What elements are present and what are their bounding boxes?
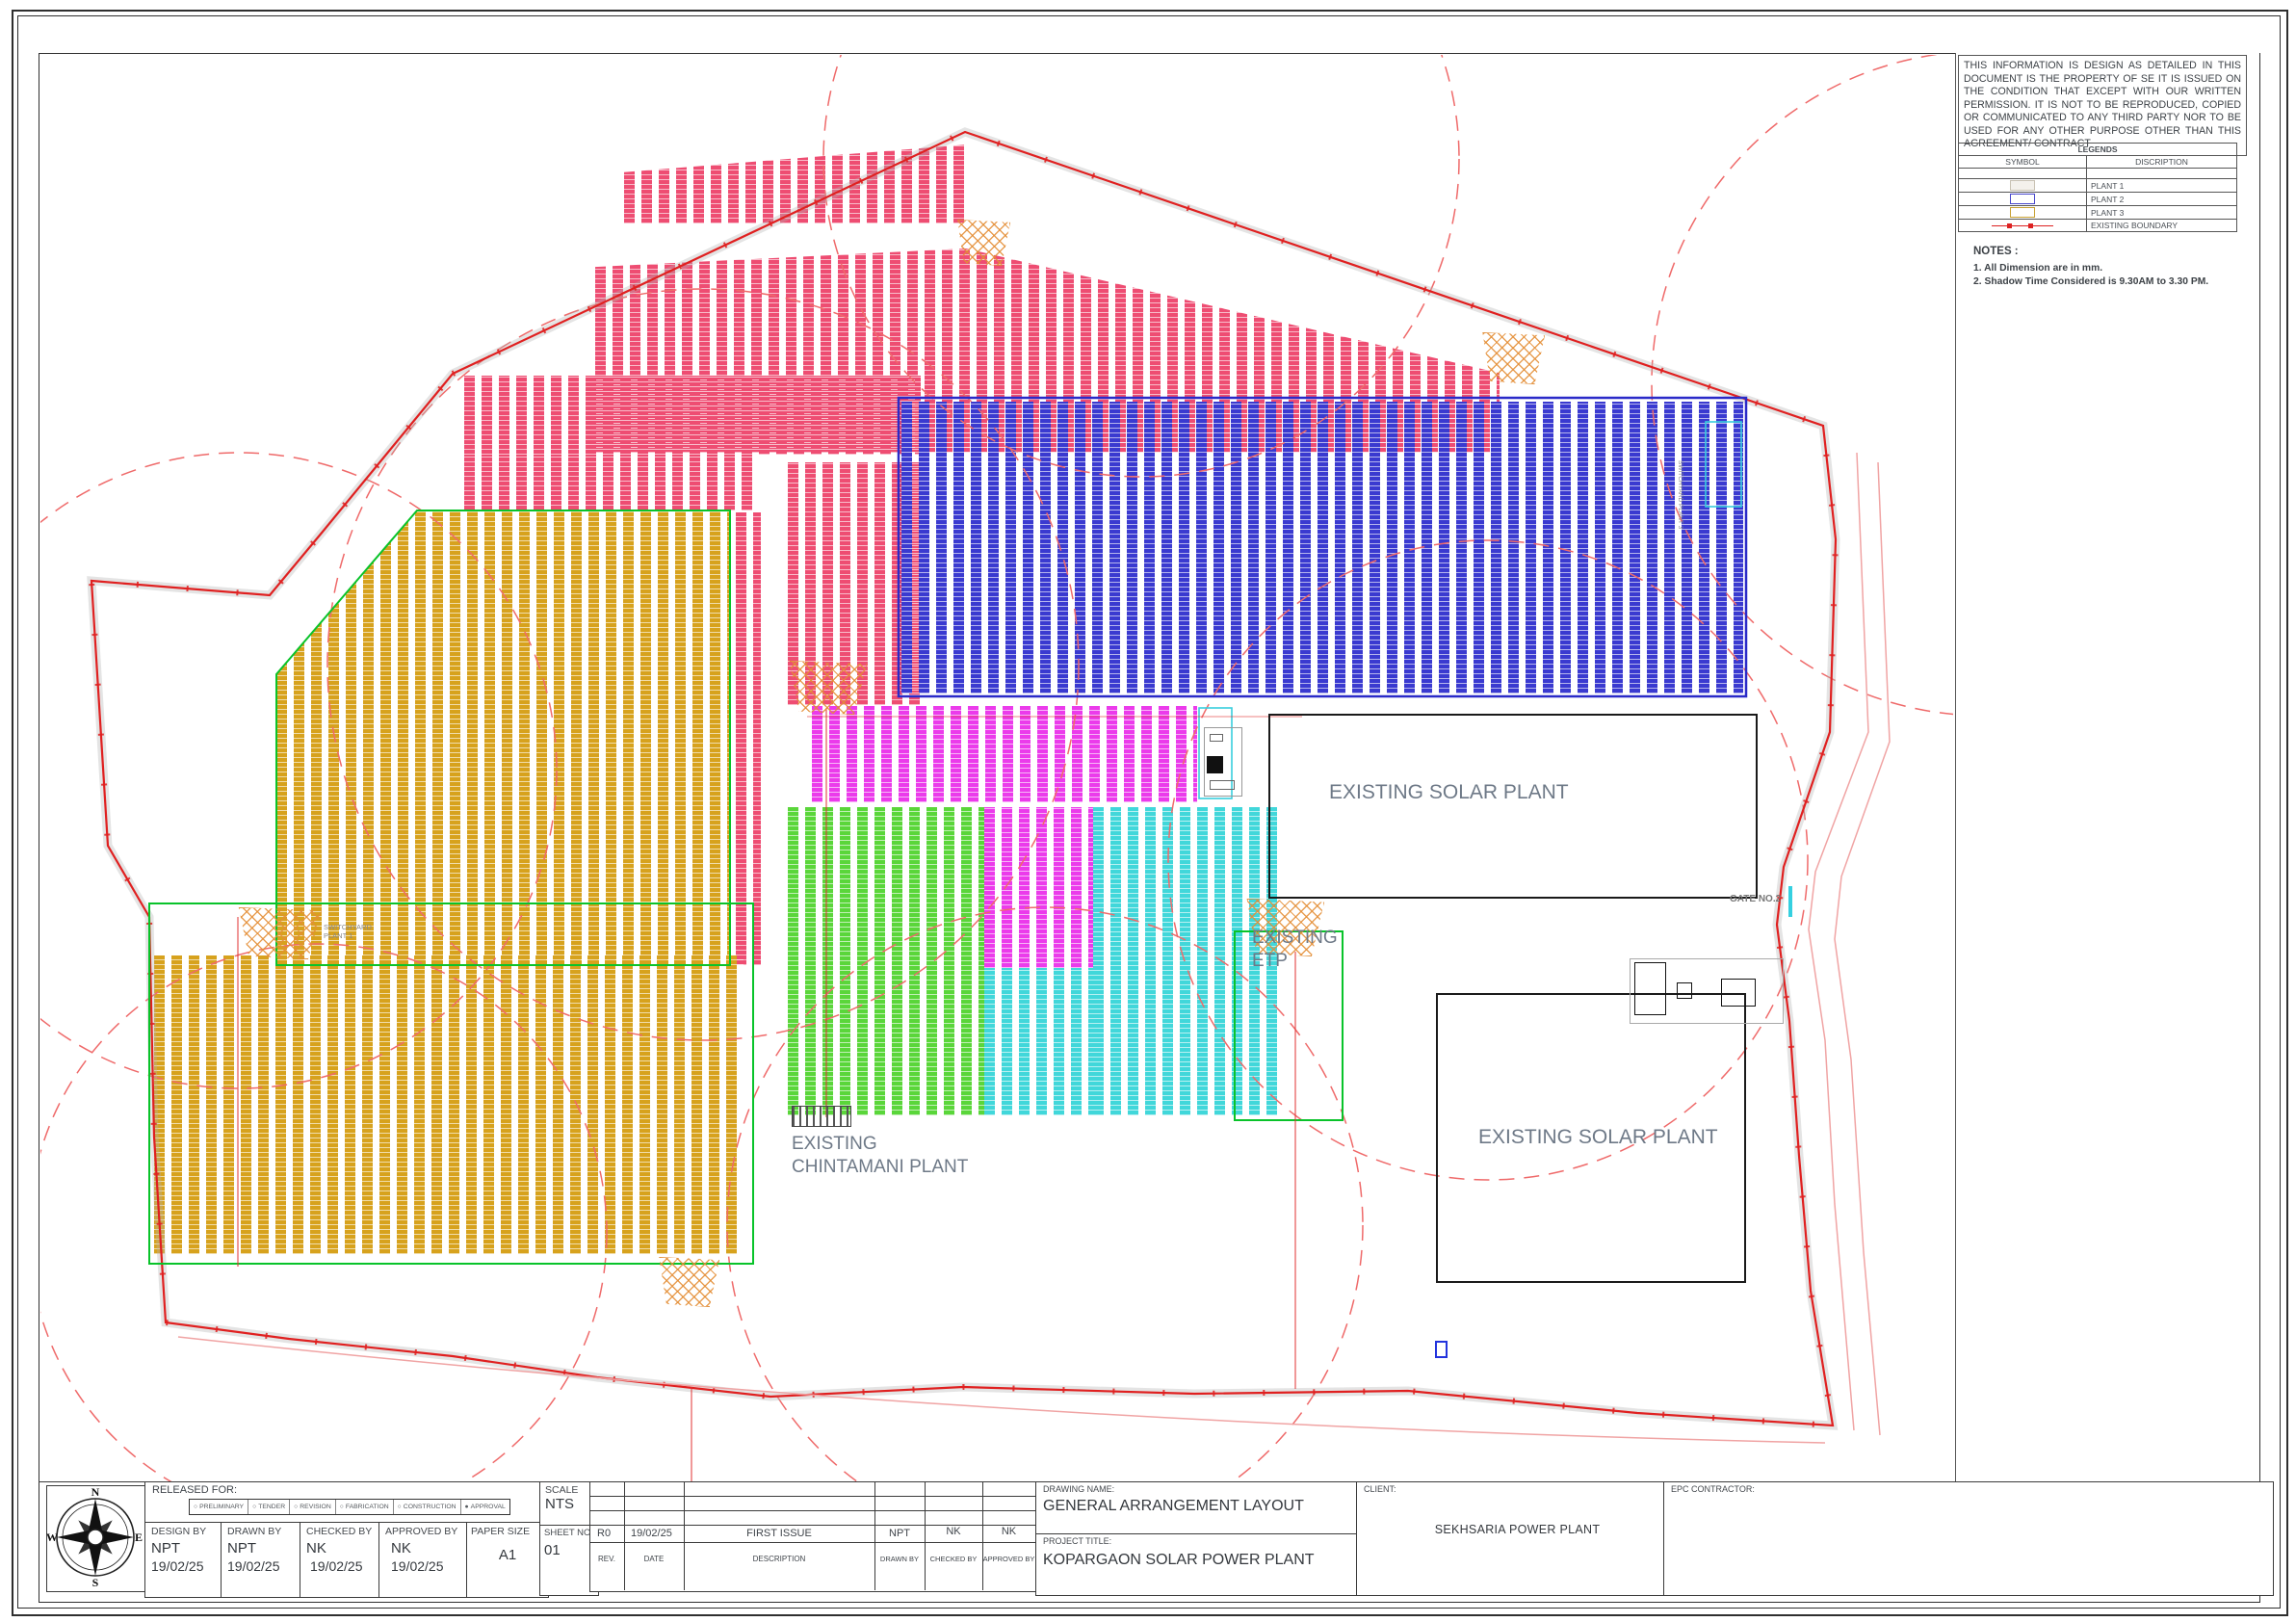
- radio-icon: ○: [398, 1504, 402, 1510]
- panel-field-plant1-left-band: [464, 376, 921, 455]
- sheet-no-label: SHEET NO.: [544, 1528, 594, 1538]
- rev-approved-header: APPROVED BY: [982, 1555, 1035, 1563]
- rev-checked-header: CHECKED BY: [925, 1555, 982, 1563]
- equipment-box-1: [1210, 734, 1223, 742]
- project-title-label: PROJECT TITLE:: [1043, 1536, 1364, 1546]
- client-label: CLIENT:: [1364, 1484, 1671, 1494]
- paper-size-value: A1: [471, 1547, 544, 1563]
- building-2: [1677, 982, 1692, 999]
- rev-date-header: DATE: [624, 1555, 684, 1563]
- epc-contractor-label: EPC CONTRACTOR:: [1671, 1484, 2266, 1494]
- radio-icon: ○: [252, 1504, 256, 1510]
- option-construction: ○CONSTRUCTION: [394, 1500, 461, 1514]
- label-chintamani: EXISTING CHINTAMANI PLANT: [792, 1133, 968, 1179]
- rev-drawn-header: DRAWN BY: [874, 1555, 925, 1563]
- checked-by-name: NK: [306, 1540, 385, 1557]
- titleblock-top-rule: [39, 1481, 2258, 1482]
- disclaimer-text: THIS INFORMATION IS DESIGN AS DETAILED I…: [1958, 55, 2247, 156]
- panel-field-plant1-left-band2: [464, 455, 759, 510]
- rev-value: R0: [597, 1528, 611, 1539]
- approved-by-label: APPROVED BY: [385, 1526, 473, 1537]
- label-switchyard-plant1-line2: PLANT 1: [324, 931, 372, 940]
- option-tender: ○TENDER: [248, 1500, 290, 1514]
- building-3: [1721, 979, 1756, 1007]
- panel-field-plant1-thin-strip: [736, 512, 761, 965]
- label-chintamani-line2: CHINTAMANI PLANT: [792, 1156, 968, 1179]
- drawing-sheet: { "disclaimer": "THIS INFORMATION IS DES…: [0, 0, 2296, 1622]
- compass-w: W: [46, 1530, 58, 1544]
- plant1-swatch: [2010, 180, 2035, 191]
- rev-header: REV.: [589, 1555, 624, 1563]
- legend-label-plant3: PLANT 3: [2087, 206, 2236, 219]
- legend-label-plant2: PLANT 2: [2087, 193, 2236, 205]
- approved-by-name: NK: [391, 1540, 473, 1557]
- option-approval: ●APPROVAL: [461, 1500, 509, 1514]
- legends-spacer-row: [1959, 168, 2236, 178]
- epc-contractor-cell: EPC CONTRACTOR:: [1663, 1481, 2274, 1596]
- radio-icon: ○: [294, 1504, 298, 1510]
- radio-icon: ○: [340, 1504, 344, 1510]
- legend-label-boundary: EXISTING BOUNDARY: [2087, 220, 2236, 231]
- rev-desc-header: DESCRIPTION: [684, 1555, 874, 1563]
- transformer-block: [1207, 756, 1223, 773]
- notes-panel: THIS INFORMATION IS DESIGN AS DETAILED I…: [1955, 53, 2259, 1481]
- legends-title: LEGENDS: [1959, 144, 2236, 155]
- legends-col-symbol: SYMBOL: [1959, 156, 2087, 168]
- legends-col-description: DISCRIPTION: [2087, 156, 2236, 168]
- panel-field-magenta-mid: [984, 807, 1093, 968]
- plant3-swatch: [2010, 207, 2035, 218]
- note-1: 1. All Dimension are in mm.: [1973, 263, 2243, 274]
- switchyard-hatch-diagonal: [1481, 332, 1545, 384]
- compass-n: N: [91, 1485, 100, 1499]
- design-by-date: 19/02/25: [151, 1558, 227, 1574]
- scale-label: SCALE: [545, 1484, 595, 1496]
- compass-e: E: [135, 1530, 143, 1544]
- client-cell: CLIENT: SEKHSARIA POWER PLANT: [1356, 1481, 1679, 1596]
- sheet-no-value: 01: [544, 1542, 594, 1558]
- radio-icon: ○: [194, 1504, 197, 1510]
- drawn-by-date: 19/02/25: [227, 1558, 306, 1574]
- rev-desc-value: FIRST ISSUE: [684, 1528, 874, 1539]
- design-by-label: DESIGN BY: [151, 1526, 227, 1537]
- small-blue-structure: [1435, 1341, 1448, 1358]
- project-title-value: KOPARGAON SOLAR POWER PLANT: [1043, 1552, 1364, 1569]
- approved-by-date: 19/02/25: [391, 1558, 473, 1574]
- option-revision: ○REVISION: [290, 1500, 336, 1514]
- compass-rose: N E S W: [46, 1485, 144, 1590]
- legend-row-plant2: PLANT 2: [1959, 192, 2236, 205]
- switchyard-hatch-top: [956, 220, 1010, 266]
- rev-drawn-value: NPT: [874, 1528, 925, 1539]
- notes-block: NOTES : 1. All Dimension are in mm. 2. S…: [1973, 246, 2243, 290]
- existing-boundary-swatch: [1992, 222, 2053, 229]
- rev-approved-value: NK: [982, 1526, 1035, 1537]
- label-existing-solar-plant-2: EXISTING SOLAR PLANT: [1478, 1125, 1718, 1150]
- switchyard-plant1-hatch: [237, 907, 322, 959]
- label-existing-etp: EXISTING ETP: [1252, 927, 1338, 973]
- label-existing-etp-line1: EXISTING: [1252, 927, 1338, 950]
- legend-label-plant1: PLANT 1: [2087, 179, 2236, 192]
- plant2-swatch: [2010, 194, 2035, 204]
- panel-field-green: [788, 807, 984, 1115]
- drawing-name-value: GENERAL ARRANGEMENT LAYOUT: [1043, 1498, 1364, 1515]
- drawn-by-name: NPT: [227, 1540, 306, 1557]
- existing-solar-plant-1-outline: [1268, 714, 1758, 899]
- legend-row-plant1: PLANT 1: [1959, 178, 2236, 192]
- drawn-by-label: DRAWN BY: [227, 1526, 306, 1537]
- legend-row-boundary: EXISTING BOUNDARY: [1959, 219, 2236, 231]
- legends-header-row: SYMBOL DISCRIPTION: [1959, 155, 2236, 168]
- building-1: [1634, 962, 1666, 1015]
- option-preliminary: ○PRELIMINARY: [190, 1500, 248, 1514]
- option-fabrication: ○FABRICATION: [336, 1500, 394, 1514]
- checked-by-date: 19/02/25: [310, 1558, 385, 1574]
- compass-s: S: [92, 1576, 99, 1589]
- released-for-label: RELEASED FOR:: [152, 1484, 237, 1496]
- legends-table: LEGENDS SYMBOL DISCRIPTION PLANT 1 PLANT…: [1958, 143, 2237, 232]
- legend-row-plant3: PLANT 3: [1959, 205, 2236, 219]
- rev-date-value: 19/02/25: [631, 1528, 672, 1539]
- paper-size-cell: PAPER SIZE A1: [466, 1522, 549, 1598]
- gate-marker: [1788, 886, 1792, 917]
- panel-field-plant3-lower: [154, 955, 744, 1254]
- panel-field-magenta-top: [812, 706, 1197, 802]
- label-switchyard-plant3: SWITCHYARD PLANT 3: [1676, 460, 1683, 529]
- checked-by-label: CHECKED BY: [306, 1526, 385, 1537]
- label-existing-etp-line2: ETP: [1252, 950, 1338, 973]
- design-by-name: NPT: [151, 1540, 227, 1557]
- switchyard-hatch-mid: [788, 661, 867, 715]
- approved-by-cell: APPROVED BY NK 19/02/25: [378, 1522, 480, 1598]
- drawing-name-label: DRAWING NAME:: [1043, 1484, 1364, 1494]
- equipment-box-2: [1210, 780, 1235, 790]
- project-title-cell: PROJECT TITLE: KOPARGAON SOLAR POWER PLA…: [1035, 1533, 1371, 1596]
- notes-title: NOTES :: [1973, 246, 2243, 257]
- label-gate-no2: GATE NO.2: [1730, 894, 1781, 906]
- label-chintamani-line1: EXISTING: [792, 1133, 968, 1156]
- label-existing-solar-plant-1: EXISTING SOLAR PLANT: [1329, 780, 1569, 805]
- radio-icon: ●: [465, 1504, 469, 1510]
- panel-field-cyan-mid: [984, 968, 1093, 1115]
- chintamani-structure: [792, 1106, 851, 1127]
- paper-size-label: PAPER SIZE: [471, 1526, 544, 1537]
- rev-checked-value: NK: [925, 1526, 982, 1537]
- released-for-options: ○PRELIMINARY ○TENDER ○REVISION ○FABRICAT…: [189, 1499, 510, 1515]
- panel-field-plant2: [901, 402, 1743, 693]
- label-switchyard-plant1: SWITCHYARD PLANT 1: [324, 923, 372, 941]
- drawing-name-cell: DRAWING NAME: GENERAL ARRANGEMENT LAYOUT: [1035, 1481, 1371, 1540]
- switchyard-hatch-bottom: [658, 1257, 719, 1307]
- note-2: 2. Shadow Time Considered is 9.30AM to 3…: [1973, 276, 2243, 287]
- label-switchyard-plant1-line1: SWITCHYARD: [324, 923, 372, 931]
- scale-value: NTS: [545, 1496, 595, 1512]
- client-value: SEKHSARIA POWER PLANT: [1364, 1523, 1671, 1536]
